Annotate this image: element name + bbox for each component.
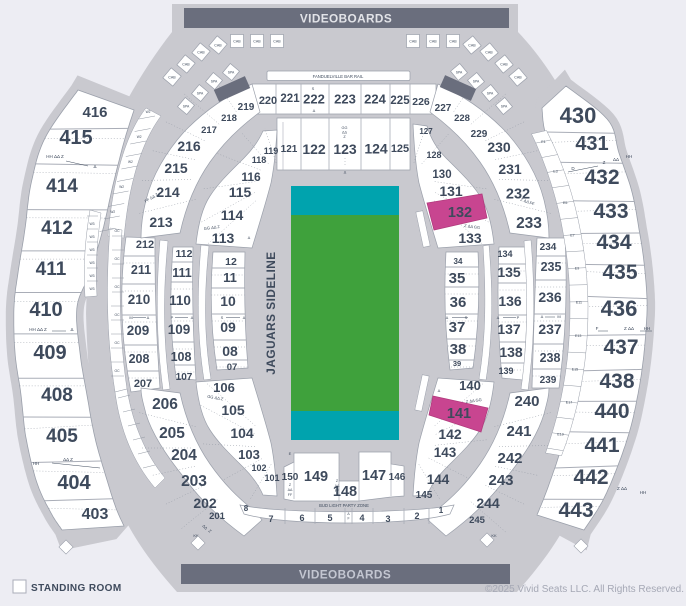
svg-text:130: 130 [432, 169, 451, 181]
svg-text:3: 3 [385, 514, 390, 524]
svg-text:146: 146 [389, 472, 406, 483]
svg-text:E11: E11 [576, 300, 582, 304]
svg-text:235: 235 [541, 260, 562, 274]
svg-text:435: 435 [602, 261, 637, 284]
svg-text:CAB: CAB [273, 40, 281, 44]
svg-text:416: 416 [82, 104, 107, 121]
svg-text:209: 209 [127, 323, 150, 338]
svg-text:BUD LIGHT PARTY ZONE: BUD LIGHT PARTY ZONE [319, 503, 369, 508]
svg-text:234: 234 [540, 242, 557, 253]
svg-text:CAB: CAB [514, 76, 522, 80]
svg-text:Δ: Δ [93, 164, 96, 169]
svg-text:203: 203 [181, 473, 207, 490]
svg-text:HH: HH [33, 461, 40, 466]
svg-text:125: 125 [391, 143, 409, 155]
svg-text:W3: W3 [89, 274, 94, 278]
svg-text:©2025 Vivid Seats LLC. All Rig: ©2025 Vivid Seats LLC. All Rights Reserv… [485, 584, 684, 595]
svg-text:115: 115 [229, 184, 252, 200]
svg-text:Δ: Δ [446, 315, 449, 320]
svg-text:12: 12 [225, 256, 237, 268]
svg-text:S: S [312, 86, 315, 91]
svg-text:HH: HH [644, 326, 651, 331]
svg-text:205: 205 [159, 425, 185, 442]
svg-text:135: 135 [497, 264, 521, 280]
svg-text:Δ: Δ [147, 315, 150, 320]
svg-text:442: 442 [573, 466, 608, 489]
svg-text:136: 136 [498, 293, 522, 309]
svg-text:SPA: SPA [183, 105, 190, 109]
svg-text:GG: GG [342, 126, 348, 130]
svg-text:CAB: CAB [485, 51, 493, 55]
svg-text:Δ: Δ [497, 315, 500, 320]
svg-text:226: 226 [412, 96, 430, 108]
svg-text:CAB: CAB [468, 44, 476, 48]
svg-text:441: 441 [584, 434, 619, 457]
svg-text:440: 440 [594, 400, 629, 423]
svg-text:110: 110 [169, 293, 191, 308]
svg-text:228: 228 [454, 113, 470, 124]
svg-text:HH: HH [626, 154, 633, 159]
svg-text:128: 128 [426, 150, 441, 160]
svg-text:438: 438 [599, 370, 634, 393]
svg-text:103: 103 [238, 447, 260, 462]
svg-text:202: 202 [193, 495, 217, 511]
svg-text:HH ΔΔ Z: HH ΔΔ Z [46, 154, 64, 159]
svg-text:SPA: SPA [456, 71, 463, 75]
svg-text:227: 227 [435, 103, 452, 114]
svg-text:HH ΔΔ Z: HH ΔΔ Z [29, 327, 47, 332]
svg-text:408: 408 [41, 385, 73, 406]
svg-text:215: 215 [164, 160, 188, 176]
svg-text:P: P [517, 315, 520, 320]
svg-text:222: 222 [303, 92, 325, 107]
svg-text:CAB: CAB [182, 63, 190, 67]
svg-text:214: 214 [156, 184, 180, 200]
svg-text:221: 221 [280, 93, 300, 105]
svg-text:OC: OC [114, 257, 120, 261]
svg-text:443: 443 [558, 499, 593, 522]
svg-text:140: 140 [459, 378, 481, 393]
svg-text:101: 101 [264, 473, 279, 483]
svg-text:121: 121 [281, 144, 298, 155]
svg-text:112: 112 [176, 248, 193, 260]
svg-text:220: 220 [259, 95, 277, 107]
svg-text:412: 412 [41, 218, 73, 239]
svg-text:ΔΔ: ΔΔ [613, 157, 619, 162]
svg-text:VIDEOBOARDS: VIDEOBOARDS [299, 568, 391, 582]
svg-text:114: 114 [221, 207, 244, 223]
svg-text:CAB: CAB [253, 40, 261, 44]
svg-text:211: 211 [131, 263, 151, 277]
svg-text:236: 236 [538, 289, 562, 305]
svg-text:7: 7 [268, 514, 273, 524]
svg-text:Δ: Δ [248, 235, 251, 240]
svg-text:106: 106 [213, 380, 235, 395]
svg-text:Z: Z [603, 160, 606, 165]
svg-text:ΔΔ Z: ΔΔ Z [63, 457, 73, 462]
svg-text:409: 409 [33, 342, 66, 364]
svg-text:204: 204 [171, 447, 197, 464]
svg-text:206: 206 [152, 396, 178, 413]
svg-text:243: 243 [488, 472, 513, 489]
svg-text:CAB: CAB [168, 76, 176, 80]
svg-text:CAB: CAB [429, 40, 437, 44]
svg-text:116: 116 [241, 170, 261, 184]
svg-text:S: S [221, 315, 224, 320]
svg-text:143: 143 [434, 445, 457, 460]
svg-text:127: 127 [419, 127, 433, 136]
svg-text:8: 8 [244, 504, 249, 513]
svg-text:SPA: SPA [197, 92, 204, 96]
svg-text:W3: W3 [89, 261, 94, 265]
svg-text:141: 141 [447, 406, 471, 422]
svg-text:6: 6 [299, 513, 304, 523]
svg-text:Δ: Δ [70, 327, 73, 332]
svg-text:437: 437 [603, 336, 638, 359]
svg-text:123: 123 [333, 141, 357, 157]
svg-text:119: 119 [264, 146, 279, 156]
svg-text:W2: W2 [146, 110, 151, 114]
svg-text:224: 224 [364, 92, 386, 107]
svg-text:Δ: Δ [191, 315, 194, 320]
svg-text:10: 10 [220, 293, 236, 309]
svg-text:237: 237 [538, 321, 562, 337]
svg-text:431: 431 [575, 133, 608, 155]
svg-text:124: 124 [364, 141, 388, 157]
svg-text:147: 147 [362, 468, 386, 484]
svg-text:2: 2 [414, 511, 419, 521]
svg-text:432: 432 [584, 166, 619, 189]
svg-text:E9: E9 [575, 267, 579, 271]
svg-text:ΔΔ: ΔΔ [288, 488, 293, 492]
svg-text:E7: E7 [570, 233, 574, 237]
svg-text:223: 223 [334, 92, 356, 107]
svg-text:W3: W3 [89, 235, 94, 239]
svg-text:Z ΔΔ: Z ΔΔ [624, 326, 634, 331]
svg-text:E1: E1 [541, 140, 545, 144]
svg-text:404: 404 [57, 472, 91, 494]
svg-text:105: 105 [221, 402, 245, 418]
svg-text:230: 230 [487, 139, 511, 155]
svg-text:122: 122 [302, 141, 326, 157]
svg-text:CAB: CAB [449, 40, 457, 44]
svg-text:M: M [557, 314, 560, 319]
svg-text:403: 403 [82, 506, 109, 523]
svg-text:212: 212 [136, 239, 154, 251]
svg-text:113: 113 [212, 230, 235, 246]
svg-text:219: 219 [238, 102, 255, 113]
svg-text:OC: OC [114, 313, 120, 317]
svg-text:JAGUARS SIDELINE: JAGUARS SIDELINE [264, 251, 278, 374]
svg-text:OC: OC [114, 229, 120, 233]
svg-text:35: 35 [449, 270, 466, 287]
svg-text:138: 138 [499, 344, 523, 360]
svg-text:HH: HH [640, 490, 647, 495]
svg-text:133: 133 [458, 230, 482, 246]
svg-text:SPA: SPA [228, 71, 235, 75]
svg-text:07: 07 [227, 362, 238, 373]
svg-text:430: 430 [560, 103, 597, 128]
svg-text:ΔΔ: ΔΔ [335, 484, 340, 488]
svg-text:34: 34 [454, 257, 463, 266]
svg-text:144: 144 [427, 472, 450, 487]
svg-text:4: 4 [359, 513, 364, 523]
svg-text:131: 131 [439, 183, 463, 199]
svg-text:1: 1 [439, 506, 444, 515]
svg-text:225: 225 [390, 95, 410, 107]
svg-text:410: 410 [29, 299, 62, 321]
svg-text:240: 240 [514, 393, 539, 410]
svg-text:CAB: CAB [409, 40, 417, 44]
svg-text:P: P [171, 315, 174, 320]
svg-text:OC: OC [114, 341, 120, 345]
svg-text:134: 134 [497, 249, 512, 259]
svg-text:Δ: Δ [438, 388, 441, 393]
svg-text:142: 142 [438, 426, 462, 442]
svg-text:CAB: CAB [500, 63, 508, 67]
svg-text:104: 104 [230, 425, 254, 441]
svg-text:433: 433 [593, 200, 628, 223]
svg-text:216: 216 [177, 138, 201, 154]
svg-text:149: 149 [304, 469, 328, 485]
svg-text:W2: W2 [110, 210, 115, 214]
svg-text:Δ: Δ [344, 170, 347, 175]
svg-text:Δ: Δ [313, 108, 316, 113]
svg-text:213: 213 [149, 214, 173, 230]
svg-text:415: 415 [59, 127, 92, 149]
svg-text:VIDEOBOARDS: VIDEOBOARDS [300, 12, 392, 26]
svg-text:229: 229 [471, 129, 488, 140]
svg-text:242: 242 [497, 450, 522, 467]
svg-text:218: 218 [221, 113, 237, 124]
svg-text:E13: E13 [575, 334, 581, 338]
svg-text:SPA: SPA [473, 80, 480, 84]
svg-text:E5: E5 [563, 201, 567, 205]
svg-text:E3: E3 [553, 170, 557, 174]
svg-text:102: 102 [251, 463, 266, 473]
svg-text:ΔΔ: ΔΔ [342, 131, 348, 135]
svg-text:241: 241 [506, 423, 531, 440]
svg-text:108: 108 [171, 350, 192, 364]
svg-text:210: 210 [128, 292, 151, 307]
svg-text:145: 145 [416, 490, 433, 501]
svg-text:436: 436 [601, 296, 638, 321]
svg-text:414: 414 [46, 176, 78, 197]
svg-text:W3: W3 [89, 287, 94, 291]
svg-text:W2: W2 [119, 185, 124, 189]
svg-text:Δ: Δ [243, 315, 246, 320]
svg-text:Z ΔΔ: Z ΔΔ [617, 486, 627, 491]
svg-text:OC: OC [114, 369, 120, 373]
svg-text:OC: OC [114, 285, 120, 289]
svg-text:09: 09 [220, 319, 236, 335]
svg-text:08: 08 [222, 343, 238, 359]
svg-text:201: 201 [209, 511, 226, 522]
svg-text:38: 38 [450, 341, 467, 358]
svg-text:M: M [129, 315, 132, 320]
svg-text:411: 411 [36, 259, 67, 280]
svg-text:233: 233 [516, 215, 542, 232]
svg-text:107: 107 [176, 372, 193, 383]
svg-text:W3: W3 [89, 248, 94, 252]
svg-text:Δ: Δ [541, 314, 544, 319]
svg-text:39: 39 [453, 359, 461, 368]
svg-text:E19: E19 [557, 433, 563, 437]
svg-text:405: 405 [46, 426, 78, 447]
svg-text:STANDING ROOM: STANDING ROOM [31, 583, 122, 594]
svg-text:CAB: CAB [214, 44, 222, 48]
svg-text:132: 132 [448, 205, 472, 221]
svg-text:238: 238 [540, 351, 561, 365]
svg-text:SPA: SPA [501, 105, 508, 109]
svg-text:118: 118 [252, 155, 267, 165]
svg-text:SPA: SPA [211, 80, 218, 84]
svg-text:109: 109 [168, 322, 191, 337]
svg-text:37: 37 [449, 319, 466, 336]
svg-text:434: 434 [596, 231, 631, 254]
svg-text:FANDUELVILLE BAR RAIL: FANDUELVILLE BAR RAIL [313, 74, 364, 79]
svg-text:F: F [347, 517, 349, 521]
svg-text:244: 244 [476, 495, 500, 511]
svg-text:CAB: CAB [197, 51, 205, 55]
svg-text:239: 239 [540, 375, 557, 386]
svg-text:217: 217 [201, 125, 217, 136]
svg-text:W2: W2 [137, 135, 142, 139]
svg-text:E: E [289, 451, 292, 456]
svg-text:E17: E17 [566, 401, 572, 405]
svg-text:F: F [596, 326, 599, 331]
svg-text:208: 208 [129, 352, 150, 366]
svg-text:5: 5 [327, 513, 332, 523]
svg-text:245: 245 [469, 515, 486, 526]
svg-text:231: 231 [498, 161, 522, 177]
svg-text:CAB: CAB [233, 40, 241, 44]
svg-text:137: 137 [497, 321, 521, 337]
svg-text:139: 139 [498, 366, 513, 376]
svg-text:W2: W2 [128, 160, 133, 164]
svg-text:SPA: SPA [487, 92, 494, 96]
svg-text:11: 11 [223, 270, 237, 285]
svg-text:111: 111 [172, 266, 192, 280]
svg-text:KK: KK [491, 533, 497, 538]
svg-text:W3: W3 [89, 222, 94, 226]
svg-text:150: 150 [282, 472, 299, 483]
svg-text:E15: E15 [572, 368, 578, 372]
svg-text:36: 36 [450, 294, 467, 311]
